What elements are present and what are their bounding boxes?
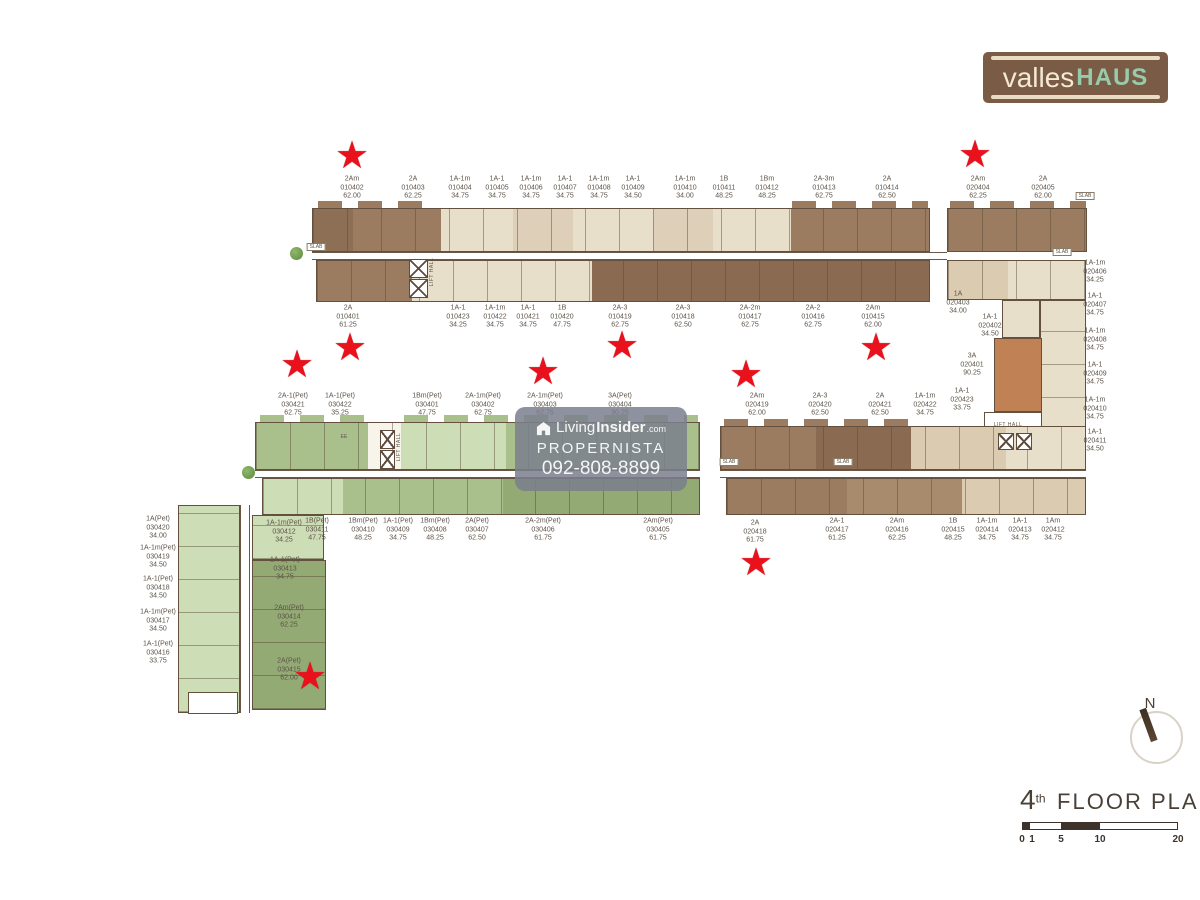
unit-label-020411: 1A-102041134.50 <box>1084 428 1107 454</box>
unit-3a-block <box>994 338 1042 412</box>
lift-shaft-icon <box>409 279 428 298</box>
star-marker: ★ <box>859 329 893 367</box>
unit-label-020408: 1A-1m02040834.75 <box>1083 327 1106 353</box>
scale-tick: 5 <box>1058 834 1064 845</box>
tree-icon <box>290 247 303 260</box>
unit-label-020423: 1A-102042333.75 <box>950 387 973 413</box>
unit-label-030409: 1A-1(Pet)03040934.75 <box>383 517 413 543</box>
unit-label-020422: 1A-1m02042234.75 <box>913 392 936 418</box>
lift-hall-label: LIFT HALL <box>429 258 435 287</box>
slab-label: SLAB <box>834 458 853 466</box>
unit-label-020417: 2A-102041761.25 <box>825 517 848 543</box>
unit-label-030413: 1A-1(Pet)03041334.75 <box>270 556 300 582</box>
wing-left-west-column <box>178 505 240 713</box>
unit-label-020401: 3A02040190.25 <box>960 352 983 378</box>
unit-label-010405: 1A-101040534.75 <box>485 175 508 201</box>
star-marker: ★ <box>729 356 763 394</box>
unit-label-010412: 1Bm01041248.25 <box>755 175 778 201</box>
unit-label-020405: 2A02040562.00 <box>1031 175 1054 201</box>
unit-label-020402: 1A-102040234.50 <box>978 313 1001 339</box>
unit-label-020421: 2A02042162.50 <box>868 392 891 418</box>
logo-text-haus: HAUS <box>1076 66 1148 90</box>
unit-label-010421: 1A-101042134.75 <box>516 304 539 330</box>
slab-label: SLAB <box>720 458 739 466</box>
wing-top-upper-row <box>312 208 930 252</box>
unit-label-010404: 1A-1m01040434.75 <box>448 175 471 201</box>
page-title: 4th FLOOR PLAN <box>1020 784 1200 816</box>
unit-label-030412: 1A-1m(Pet)03041234.25 <box>266 519 302 545</box>
scale-bar: 0 1 5 10 20 <box>1022 822 1178 848</box>
floor-number: 4 <box>1020 784 1036 815</box>
logo-text-valles: valles <box>1003 64 1075 92</box>
wing-left-stairs <box>188 692 238 714</box>
unit-label-030419: 1A-1m(Pet)03041934.50 <box>140 544 176 570</box>
unit-label-030414: 2Am(Pet)03041462.25 <box>274 604 304 630</box>
wing-mid-lower-right <box>726 478 1086 515</box>
logo-bar <box>991 56 1160 60</box>
lift-hall-label: LIFT HALL <box>396 433 402 462</box>
star-marker: ★ <box>605 327 639 365</box>
scale-tick: 0 <box>1019 834 1025 845</box>
unit-label-010411: 1B01041148.25 <box>713 175 736 201</box>
unit-label-020410: 1A-1m02041034.75 <box>1083 396 1106 422</box>
star-marker: ★ <box>333 329 367 367</box>
unit-label-010406: 1A-1m01040634.75 <box>519 175 542 201</box>
star-marker: ★ <box>335 137 369 175</box>
lift-shaft-icon <box>998 433 1014 450</box>
wing-mid-corridor-right <box>720 470 1086 478</box>
watermark: Living Insider .com PROPERNISTA 092-808-… <box>515 407 687 491</box>
unit-label-020409: 1A-102040934.75 <box>1083 361 1106 387</box>
unit-label-030421: 2A-1(Pet)03042162.75 <box>278 392 308 418</box>
star-marker: ★ <box>958 136 992 174</box>
unit-label-010420: 1B01042047.75 <box>550 304 573 330</box>
unit-label-030420: 1A(Pet)03042034.00 <box>146 515 170 541</box>
lift-hall-label: LIFT HALL <box>994 422 1023 428</box>
unit-label-020404: 2Am02040462.25 <box>966 175 989 201</box>
unit-label-010409: 1A-101040934.50 <box>621 175 644 201</box>
watermark-phone: 092-808-8899 <box>542 459 660 479</box>
unit-label-030411: 1B(Pet)03041147.75 <box>305 517 329 543</box>
unit-label-020420: 2A-302042062.50 <box>808 392 831 418</box>
unit-label-010418: 2A-301041862.50 <box>671 304 694 330</box>
unit-label-020418: 2A02041861.75 <box>743 519 766 545</box>
scale-track <box>1022 822 1178 830</box>
unit-label-010403: 2A01040362.25 <box>401 175 424 201</box>
unit-label-020416: 2Am02041662.25 <box>885 517 908 543</box>
valleshaus-logo: valles HAUS <box>983 52 1168 103</box>
watermark-propernista: PROPERNISTA <box>537 440 665 457</box>
unit-label-020407: 1A-102040734.75 <box>1083 292 1106 318</box>
slab-label: SLAB <box>1076 192 1095 200</box>
unit-label-020412: 1Am02041234.75 <box>1041 517 1064 543</box>
lift-shaft-icon <box>409 259 428 278</box>
wing-top-east-upper <box>947 208 1087 252</box>
watermark-tld: .com <box>646 421 666 437</box>
unit-label-020406: 1A-1m02040634.25 <box>1083 259 1106 285</box>
wing-top-corridor <box>312 252 947 260</box>
unit-label-030408: 1Bm(Pet)03040848.25 <box>420 517 450 543</box>
star-marker: ★ <box>280 346 314 384</box>
wing-left-corridor <box>240 505 250 713</box>
watermark-living: Living <box>556 420 595 436</box>
unit-label-010401: 2A01040161.25 <box>336 304 359 330</box>
unit-label-010416: 2A-201041662.75 <box>801 304 824 330</box>
unit-label-010413: 2A-3m01041362.75 <box>812 175 835 201</box>
unit-label-030402: 2A-1m(Pet)03040262.75 <box>465 392 501 418</box>
floor-plan-canvas: 2Am01040262.002A01040362.251A-1m01040434… <box>0 0 1200 900</box>
floor-plan-text: FLOOR PLAN <box>1057 789 1200 814</box>
logo-bar <box>991 95 1160 99</box>
lift-shaft-icon <box>380 450 395 469</box>
watermark-insider: Insider <box>596 420 645 436</box>
unit-label-030410: 1Bm(Pet)03041048.25 <box>348 517 378 543</box>
unit-label-020414: 1A-1m02041434.75 <box>975 517 998 543</box>
unit-label-030416: 1A-1(Pet)03041633.75 <box>143 640 173 666</box>
unit-label-020413: 1A-102041334.75 <box>1008 517 1031 543</box>
lift-shaft-icon <box>1016 433 1032 450</box>
unit-label-020415: 1B02041548.25 <box>941 517 964 543</box>
unit-label-010402: 2Am01040262.00 <box>340 175 363 201</box>
unit-label-010423: 1A-101042334.25 <box>446 304 469 330</box>
unit-label-030401: 1Bm(Pet)03040147.75 <box>412 392 442 418</box>
star-marker: ★ <box>293 658 327 696</box>
unit-label-010422: 1A-1m01042234.75 <box>483 304 506 330</box>
unit-label-030406: 2A-2m(Pet)03040661.75 <box>525 517 561 543</box>
unit-label-020419: 2Am02041962.00 <box>745 392 768 418</box>
scale-tick: 20 <box>1172 834 1183 845</box>
unit-label-010415: 2Am01041562.00 <box>861 304 884 330</box>
unit-label-030405: 2Am(Pet)03040561.75 <box>643 517 673 543</box>
unit-label-010410: 1A-1m01041034.00 <box>673 175 696 201</box>
floor-ordinal: th <box>1036 792 1046 806</box>
unit-label-030407: 2A(Pet)03040762.50 <box>465 517 489 543</box>
watermark-brand: Living Insider .com <box>536 420 666 437</box>
tree-icon <box>242 466 255 479</box>
scale-tick: 1 <box>1029 834 1035 845</box>
star-marker: ★ <box>739 544 773 582</box>
house-icon <box>536 421 551 436</box>
ee-label: EE <box>341 434 348 440</box>
scale-segment <box>1022 822 1030 830</box>
scale-tick: 10 <box>1094 834 1105 845</box>
scale-segment <box>1061 822 1100 830</box>
unit-label-010414: 2A01041462.50 <box>875 175 898 201</box>
unit-label-010408: 1A-1m01040834.75 <box>587 175 610 201</box>
unit-label-020403: 1A02040334.00 <box>946 290 969 316</box>
unit-label-010417: 2A-2m01041762.75 <box>738 304 761 330</box>
unit-label-030418: 1A-1(Pet)03041834.50 <box>143 575 173 601</box>
lift-shaft-icon <box>380 430 395 449</box>
wing-right-inner-unit <box>1002 300 1040 338</box>
unit-label-030422: 1A-1(Pet)03042235.25 <box>325 392 355 418</box>
slab-label: SLAB <box>1053 248 1072 256</box>
slab-label: SLAB <box>307 243 326 251</box>
star-marker: ★ <box>526 353 560 391</box>
unit-label-030417: 1A-1m(Pet)03041734.50 <box>140 608 176 634</box>
unit-label-010407: 1A-101040734.75 <box>553 175 576 201</box>
